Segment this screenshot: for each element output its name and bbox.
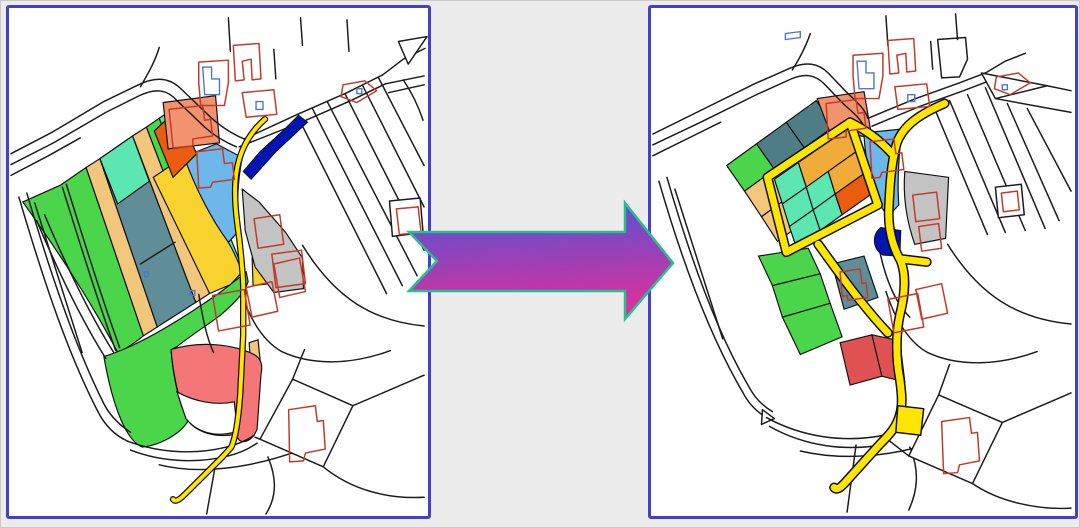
road-pad bbox=[896, 406, 924, 436]
east-house-square-after bbox=[995, 184, 1024, 217]
map-panel-after bbox=[648, 5, 1078, 519]
map-before-svg bbox=[9, 8, 428, 516]
map-after-svg bbox=[651, 8, 1075, 516]
parcels-before bbox=[23, 96, 304, 447]
gray-parcel-band-after bbox=[904, 171, 948, 244]
road-fork-island-after bbox=[981, 73, 1047, 99]
top-outline-parcel bbox=[938, 38, 968, 78]
transition-arrow-svg bbox=[401, 191, 691, 331]
right-arrow-shape bbox=[409, 203, 673, 319]
map-panel-before bbox=[6, 5, 431, 519]
transition-arrow bbox=[401, 191, 691, 331]
big-south-parcel bbox=[260, 379, 353, 467]
slide-canvas bbox=[0, 0, 1080, 528]
gray-parcel-band bbox=[242, 189, 303, 292]
